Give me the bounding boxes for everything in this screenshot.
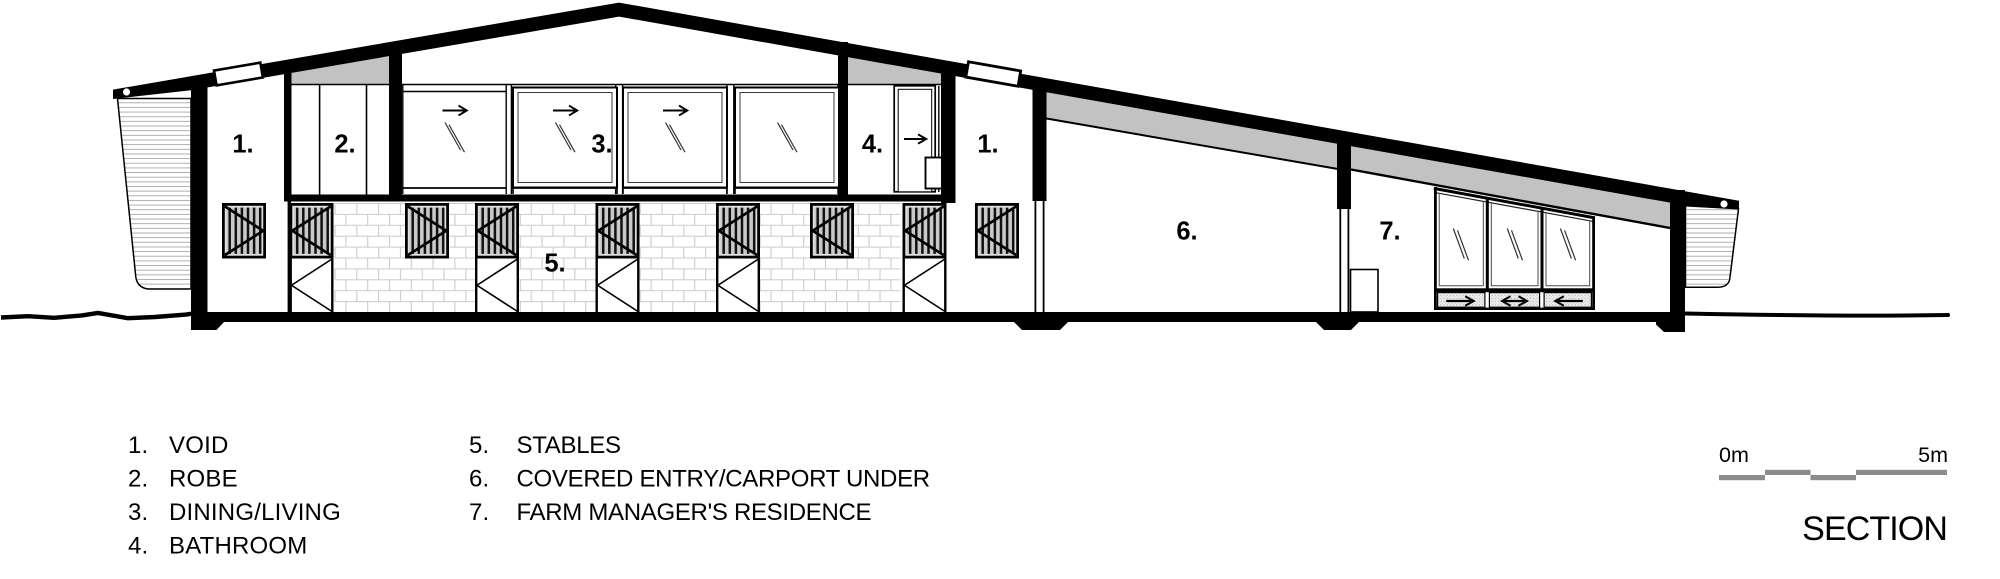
svg-text:3.: 3. <box>128 499 148 526</box>
svg-text:4.: 4. <box>862 131 883 159</box>
svg-text:BATHROOM: BATHROOM <box>169 533 308 560</box>
svg-text:5.: 5. <box>469 432 489 459</box>
svg-text:5.: 5. <box>544 250 565 278</box>
svg-text:6.: 6. <box>1176 218 1197 246</box>
svg-text:ROBE: ROBE <box>169 466 238 493</box>
svg-text:1.: 1. <box>977 131 998 159</box>
svg-text:6.: 6. <box>469 466 489 493</box>
svg-text:3.: 3. <box>591 131 612 159</box>
svg-text:4.: 4. <box>128 533 148 560</box>
svg-text:0m: 0m <box>1719 443 1749 467</box>
svg-text:1.: 1. <box>128 432 148 459</box>
svg-text:1.: 1. <box>232 131 253 159</box>
svg-text:VOID: VOID <box>169 432 228 459</box>
svg-text:2.: 2. <box>334 131 355 159</box>
svg-text:7.: 7. <box>469 499 489 526</box>
svg-text:DINING/LIVING: DINING/LIVING <box>169 499 341 526</box>
svg-text:2.: 2. <box>128 466 148 493</box>
svg-text:5m: 5m <box>1918 443 1948 467</box>
svg-text:SECTION: SECTION <box>1802 510 1947 548</box>
svg-text:FARM MANAGER'S RESIDENCE: FARM MANAGER'S RESIDENCE <box>517 499 872 526</box>
svg-text:STABLES: STABLES <box>517 432 621 459</box>
svg-text:COVERED ENTRY/CARPORT UNDER: COVERED ENTRY/CARPORT UNDER <box>517 466 930 493</box>
svg-text:7.: 7. <box>1379 218 1400 246</box>
